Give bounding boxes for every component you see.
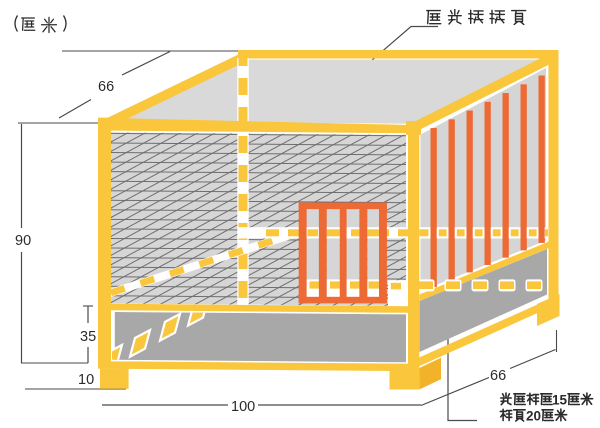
svg-text:10: 10 (78, 372, 94, 388)
svg-text:90: 90 (15, 233, 31, 249)
svg-text:15: 15 (552, 393, 568, 408)
svg-text:66: 66 (490, 368, 506, 384)
svg-text:20: 20 (526, 409, 541, 424)
svg-text:100: 100 (231, 399, 255, 415)
svg-text:35: 35 (80, 329, 96, 345)
svg-text:66: 66 (98, 79, 114, 95)
